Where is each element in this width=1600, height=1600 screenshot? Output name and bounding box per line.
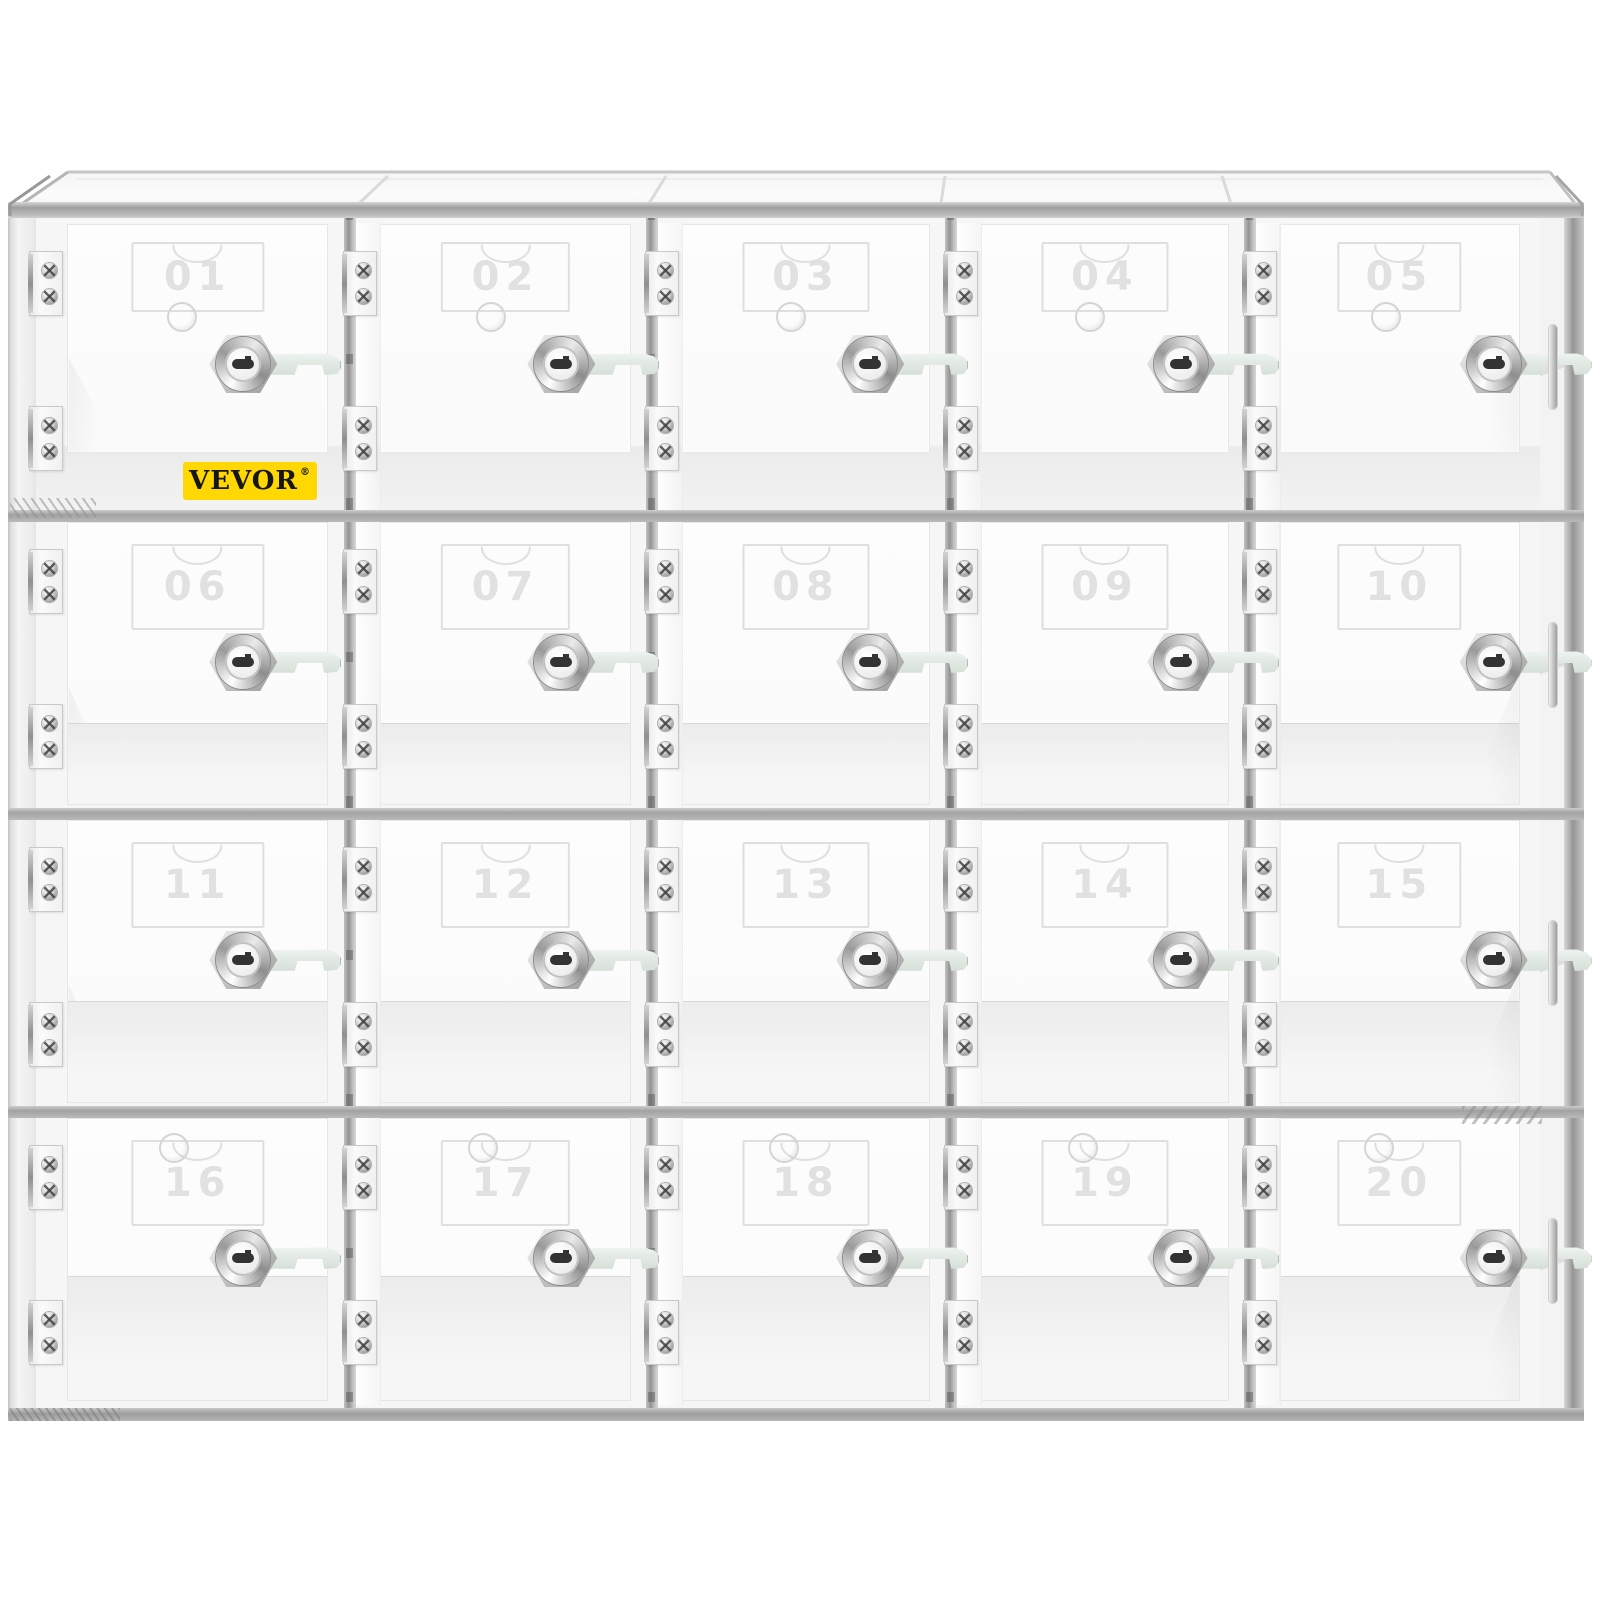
label-card-notch <box>1080 531 1130 565</box>
locker-number: 18 <box>772 1160 840 1206</box>
hinge-bottom <box>1243 406 1277 472</box>
label-card-notch <box>1080 229 1130 263</box>
locker-number: 09 <box>1071 564 1139 610</box>
locker-interior-floor <box>982 1001 1228 1102</box>
screw-icon <box>957 418 972 433</box>
locker-label-card: 08 <box>742 544 869 630</box>
vent-hole-icon <box>776 302 806 332</box>
label-card-notch <box>781 229 831 263</box>
hinge-bottom <box>343 1002 377 1068</box>
screw-icon <box>1256 289 1271 304</box>
locker-interior-floor <box>683 723 929 805</box>
locker-label-card: 09 <box>1041 544 1168 630</box>
keyhole-icon <box>1170 1253 1192 1263</box>
hinge-top <box>29 549 63 615</box>
row-cells: 16 17 <box>36 1112 1540 1410</box>
locker-cell: 12 <box>350 814 652 1112</box>
locker-cell: 13 <box>652 814 951 1112</box>
locker-label-card: 12 <box>441 842 569 928</box>
label-card-notch <box>781 531 831 565</box>
locker-label-card: 05 <box>1338 242 1461 312</box>
screw-icon <box>957 263 972 278</box>
latch-catch-bar <box>1549 921 1557 1005</box>
screw-icon <box>658 1338 673 1353</box>
vent-hole-icon <box>1075 302 1105 332</box>
label-card-notch <box>480 829 530 863</box>
locker-number: 14 <box>1071 862 1139 908</box>
shelf-front-bar <box>8 808 1584 820</box>
locker-number: 10 <box>1365 564 1433 610</box>
locker-cell: 04 <box>951 218 1250 516</box>
hinge-top <box>29 251 63 317</box>
locker-label-card: 07 <box>441 544 569 630</box>
locker-cell: 05 <box>1250 218 1540 516</box>
screw-icon <box>356 561 371 576</box>
screw-icon <box>1256 444 1271 459</box>
screw-icon <box>658 885 673 900</box>
locker-interior-floor <box>683 1276 929 1400</box>
screw-icon <box>1256 418 1271 433</box>
screw-icon <box>658 263 673 278</box>
screw-icon <box>1256 1312 1271 1327</box>
hinge-top <box>645 251 679 317</box>
label-card-notch <box>1374 531 1424 565</box>
locker-interior-floor <box>683 1001 929 1102</box>
hinge-bottom <box>29 1300 63 1366</box>
shelf-front-bar <box>8 510 1584 522</box>
locker-door: 03 <box>682 224 930 453</box>
screw-icon <box>1256 1157 1271 1172</box>
locker-cell: 17 <box>350 1112 652 1410</box>
screw-icon <box>1256 561 1271 576</box>
locker-row: 06 07 <box>36 516 1540 814</box>
latch-catch-bar <box>1549 325 1557 409</box>
vent-hole-icon <box>769 1133 799 1163</box>
screw-icon <box>658 1014 673 1029</box>
keyhole-icon <box>550 359 572 369</box>
locker-cell: 19 <box>951 1112 1250 1410</box>
locker-cell: 10 <box>1250 516 1540 814</box>
hinge-top <box>343 251 377 317</box>
screw-icon <box>957 444 972 459</box>
screw-icon <box>42 1338 57 1353</box>
locker-number: 08 <box>772 564 840 610</box>
hinge-bottom <box>29 406 63 472</box>
hinge-bottom <box>645 1002 679 1068</box>
locker-label-card: 01 <box>131 242 264 312</box>
product-photo-acrylic-locker-cabinet: 01 02 <box>0 0 1600 1600</box>
screw-icon <box>658 444 673 459</box>
screw-icon <box>42 289 57 304</box>
vent-hole-icon <box>1364 1133 1394 1163</box>
brand-badge: VEVOR® <box>183 462 317 500</box>
screw-icon <box>957 1157 972 1172</box>
screw-icon <box>356 859 371 874</box>
screw-icon <box>42 716 57 731</box>
label-card-notch <box>1374 829 1424 863</box>
screw-icon <box>42 1014 57 1029</box>
screw-icon <box>42 263 57 278</box>
keyhole-icon <box>1483 657 1505 667</box>
locker-interior-floor <box>381 723 630 805</box>
locker-number: 11 <box>164 862 232 908</box>
screw-icon <box>356 1157 371 1172</box>
screw-icon <box>1256 1040 1271 1055</box>
screw-icon <box>658 418 673 433</box>
screw-icon <box>42 1312 57 1327</box>
locker-cell: 18 <box>652 1112 951 1410</box>
screw-icon <box>356 742 371 757</box>
locker-label-card: 10 <box>1338 544 1461 630</box>
hinge-bottom <box>645 406 679 472</box>
locker-label-card: 11 <box>131 842 264 928</box>
locker-row: 16 17 <box>36 1112 1540 1410</box>
locker-interior-floor <box>68 1001 327 1102</box>
hinge-top <box>343 847 377 913</box>
keyhole-icon <box>1483 955 1505 965</box>
locker-cell: 20 <box>1250 1112 1540 1410</box>
keyhole-icon <box>1170 955 1192 965</box>
locker-interior-floor <box>982 1276 1228 1400</box>
shelf-front-bar <box>8 1106 1584 1118</box>
screw-icon <box>957 587 972 602</box>
locker-interior-floor <box>1280 723 1519 805</box>
screw-icon <box>957 289 972 304</box>
locker-cell: 09 <box>951 516 1250 814</box>
locker-number: 19 <box>1071 1160 1139 1206</box>
screw-icon <box>42 742 57 757</box>
screw-icon <box>356 418 371 433</box>
screw-icon <box>1256 587 1271 602</box>
locker-number: 13 <box>772 862 840 908</box>
row-cells: 11 12 <box>36 814 1540 1112</box>
reflection-hatch-right <box>1462 1106 1542 1124</box>
locker-interior-floor <box>982 723 1228 805</box>
hinge-top <box>343 1145 377 1211</box>
hinge-bottom <box>944 1300 978 1366</box>
hinge-bottom <box>1243 1300 1277 1366</box>
locker-number: 07 <box>472 564 540 610</box>
screw-icon <box>42 418 57 433</box>
hinge-bottom <box>343 704 377 770</box>
hinge-top <box>29 847 63 913</box>
hinge-bottom <box>343 1300 377 1366</box>
label-card-notch <box>480 531 530 565</box>
hinge-bottom <box>944 1002 978 1068</box>
screw-icon <box>356 289 371 304</box>
screw-icon <box>1256 1338 1271 1353</box>
keyhole-icon <box>550 1253 572 1263</box>
screw-icon <box>356 263 371 278</box>
hinge-top <box>1243 847 1277 913</box>
screw-icon <box>1256 885 1271 900</box>
latch-catch-bar <box>1549 623 1557 707</box>
locker-label-card: 17 <box>441 1140 569 1226</box>
locker-cell: 07 <box>350 516 652 814</box>
hinge-top <box>944 1145 978 1211</box>
screw-icon <box>42 561 57 576</box>
locker-label-card: 14 <box>1041 842 1168 928</box>
keyhole-icon <box>859 657 881 667</box>
hinge-bottom <box>1243 1002 1277 1068</box>
hinge-bottom <box>944 406 978 472</box>
hinge-top <box>645 1145 679 1211</box>
hinge-bottom <box>944 704 978 770</box>
label-card-notch <box>480 229 530 263</box>
keyhole-icon <box>1170 657 1192 667</box>
label-card-notch <box>173 229 223 263</box>
locker-label-card: 18 <box>742 1140 869 1226</box>
hinge-top <box>29 1145 63 1211</box>
hinge-top <box>944 847 978 913</box>
hinge-top <box>944 549 978 615</box>
hinge-bottom <box>1243 704 1277 770</box>
locker-cell: 08 <box>652 516 951 814</box>
locker-label-card: 16 <box>131 1140 264 1226</box>
locker-door: 02 <box>380 224 631 453</box>
screw-icon <box>957 742 972 757</box>
keyhole-icon <box>859 1253 881 1263</box>
screw-icon <box>356 885 371 900</box>
hinge-bottom <box>343 406 377 472</box>
screw-icon <box>356 587 371 602</box>
screw-icon <box>42 1040 57 1055</box>
screw-icon <box>356 716 371 731</box>
hinge-top <box>343 549 377 615</box>
keyhole-icon <box>550 955 572 965</box>
locker-cell: 06 <box>36 516 350 814</box>
label-card-notch <box>173 531 223 565</box>
screw-icon <box>957 1338 972 1353</box>
keyhole-icon <box>232 657 254 667</box>
screw-icon <box>957 859 972 874</box>
hinge-top <box>1243 1145 1277 1211</box>
screw-icon <box>1256 1183 1271 1198</box>
hinge-bottom <box>645 1300 679 1366</box>
screw-icon <box>356 1040 371 1055</box>
screw-icon <box>957 1014 972 1029</box>
screw-icon <box>42 444 57 459</box>
screw-icon <box>658 1183 673 1198</box>
screw-icon <box>658 289 673 304</box>
locker-cell: 03 <box>652 218 951 516</box>
label-card-notch <box>781 829 831 863</box>
screw-icon <box>1256 716 1271 731</box>
locker-interior-floor <box>381 1276 630 1400</box>
reflection-hatch-left <box>10 498 96 518</box>
label-card-notch <box>1374 229 1424 263</box>
locker-interior-floor <box>68 1276 327 1400</box>
screw-icon <box>1256 1014 1271 1029</box>
locker-door: 01 <box>67 224 328 453</box>
screw-icon <box>356 1312 371 1327</box>
keyhole-icon <box>232 955 254 965</box>
locker-number: 12 <box>472 862 540 908</box>
hinge-top <box>1243 549 1277 615</box>
vent-hole-icon <box>1371 302 1401 332</box>
locker-cell: 14 <box>951 814 1250 1112</box>
hinge-top <box>645 549 679 615</box>
vent-hole-icon <box>468 1133 498 1163</box>
vent-hole-icon <box>1068 1133 1098 1163</box>
cabinet-top-face <box>0 0 1600 230</box>
brand-name: VEVOR <box>189 466 298 496</box>
keyhole-icon <box>859 359 881 369</box>
screw-icon <box>1256 263 1271 278</box>
screw-icon <box>1256 742 1271 757</box>
locker-grid: 01 02 <box>36 218 1540 1410</box>
screw-icon <box>957 561 972 576</box>
locker-label-card: 04 <box>1041 242 1168 312</box>
hinge-bottom <box>29 1002 63 1068</box>
locker-row: 11 12 <box>36 814 1540 1112</box>
locker-label-card: 15 <box>1338 842 1461 928</box>
keyhole-icon <box>232 1253 254 1263</box>
vent-hole-icon <box>476 302 506 332</box>
keyhole-icon <box>1483 1253 1505 1263</box>
keyhole-icon <box>232 359 254 369</box>
locker-label-card: 02 <box>441 242 569 312</box>
registered-mark-icon: ® <box>300 467 311 478</box>
locker-interior-floor <box>1280 1276 1519 1400</box>
row-cells: 06 07 <box>36 516 1540 814</box>
screw-icon <box>658 587 673 602</box>
locker-number: 16 <box>164 1160 232 1206</box>
screw-icon <box>658 1040 673 1055</box>
screw-icon <box>42 859 57 874</box>
cabinet-bottom-frame-bar <box>8 1408 1584 1421</box>
locker-label-card: 13 <box>742 842 869 928</box>
screw-icon <box>42 885 57 900</box>
locker-number: 06 <box>164 564 232 610</box>
screw-icon <box>356 1338 371 1353</box>
locker-cell: 16 <box>36 1112 350 1410</box>
screw-icon <box>658 1157 673 1172</box>
screw-icon <box>957 1312 972 1327</box>
locker-interior-floor <box>1280 1001 1519 1102</box>
screw-icon <box>356 444 371 459</box>
screw-icon <box>957 1183 972 1198</box>
hinge-top <box>944 251 978 317</box>
locker-cell: 02 <box>350 218 652 516</box>
screw-icon <box>1256 859 1271 874</box>
screw-icon <box>42 1183 57 1198</box>
screw-icon <box>658 1312 673 1327</box>
label-card-notch <box>173 829 223 863</box>
hinge-bottom <box>645 704 679 770</box>
screw-icon <box>356 1014 371 1029</box>
screw-icon <box>658 859 673 874</box>
keyhole-icon <box>1170 359 1192 369</box>
screw-icon <box>957 885 972 900</box>
locker-number: 20 <box>1365 1160 1433 1206</box>
vent-hole-icon <box>159 1133 189 1163</box>
hinge-bottom <box>29 704 63 770</box>
keyhole-icon <box>550 657 572 667</box>
reflection-hatch-bottom <box>10 1408 120 1421</box>
vent-hole-icon <box>167 302 197 332</box>
keyhole-icon <box>859 955 881 965</box>
screw-icon <box>957 1040 972 1055</box>
locker-interior-floor <box>68 723 327 805</box>
screw-icon <box>42 587 57 602</box>
label-card-notch <box>1080 829 1130 863</box>
hinge-top <box>645 847 679 913</box>
keyhole-icon <box>1483 359 1505 369</box>
latch-catch-bar <box>1549 1219 1557 1303</box>
locker-cell: 15 <box>1250 814 1540 1112</box>
locker-number: 17 <box>472 1160 540 1206</box>
locker-number: 15 <box>1365 862 1433 908</box>
locker-label-card: 03 <box>742 242 869 312</box>
locker-label-card: 19 <box>1041 1140 1168 1226</box>
hinge-top <box>1243 251 1277 317</box>
screw-icon <box>957 716 972 731</box>
locker-label-card: 06 <box>131 544 264 630</box>
locker-label-card: 20 <box>1338 1140 1461 1226</box>
screw-icon <box>42 1157 57 1172</box>
screw-icon <box>356 1183 371 1198</box>
locker-cell: 11 <box>36 814 350 1112</box>
locker-interior-floor <box>381 1001 630 1102</box>
top-front-frame-bar <box>8 202 1584 218</box>
screw-icon <box>658 716 673 731</box>
screw-icon <box>658 561 673 576</box>
screw-icon <box>658 742 673 757</box>
